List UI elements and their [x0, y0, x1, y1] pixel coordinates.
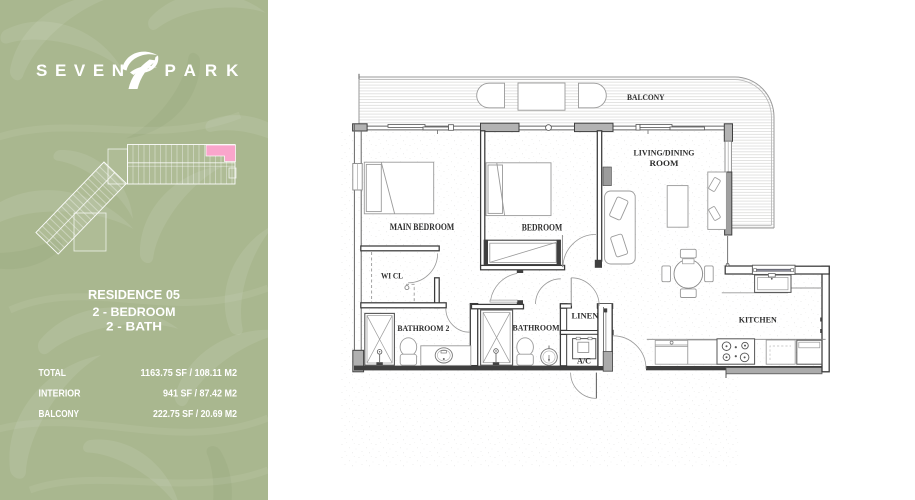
svg-text:PARK: PARK [165, 61, 248, 80]
svg-text:1163.75 SF / 108.11 M2: 1163.75 SF / 108.11 M2 [141, 368, 238, 379]
svg-text:BEDROOM: BEDROOM [522, 223, 563, 233]
svg-text:BATHROOM 2: BATHROOM 2 [397, 324, 449, 333]
svg-text:BATHROOM: BATHROOM [513, 324, 560, 333]
svg-text:KITCHEN: KITCHEN [739, 315, 778, 325]
svg-text:WI CL: WI CL [381, 272, 403, 281]
svg-text:2 - BEDROOM: 2 - BEDROOM [93, 305, 176, 319]
svg-text:LINEN: LINEN [572, 312, 599, 321]
svg-text:MAIN BEDROOM: MAIN BEDROOM [390, 222, 455, 232]
svg-text:SEVEN: SEVEN [36, 61, 132, 80]
svg-text:941 SF / 87.42 M2: 941 SF / 87.42 M2 [163, 389, 237, 400]
svg-text:LIVING/DINING: LIVING/DINING [634, 148, 695, 158]
svg-text:TOTAL: TOTAL [39, 368, 67, 379]
svg-text:RESIDENCE 05: RESIDENCE 05 [88, 287, 180, 302]
svg-text:BALCONY: BALCONY [39, 409, 80, 420]
svg-text:222.75 SF / 20.69 M2: 222.75 SF / 20.69 M2 [153, 409, 237, 420]
svg-text:A/C: A/C [577, 357, 591, 366]
svg-text:BALCONY: BALCONY [627, 92, 665, 102]
svg-text:INTERIOR: INTERIOR [39, 389, 82, 400]
svg-text:2 - BATH: 2 - BATH [106, 320, 162, 334]
svg-text:ROOM: ROOM [650, 158, 680, 168]
